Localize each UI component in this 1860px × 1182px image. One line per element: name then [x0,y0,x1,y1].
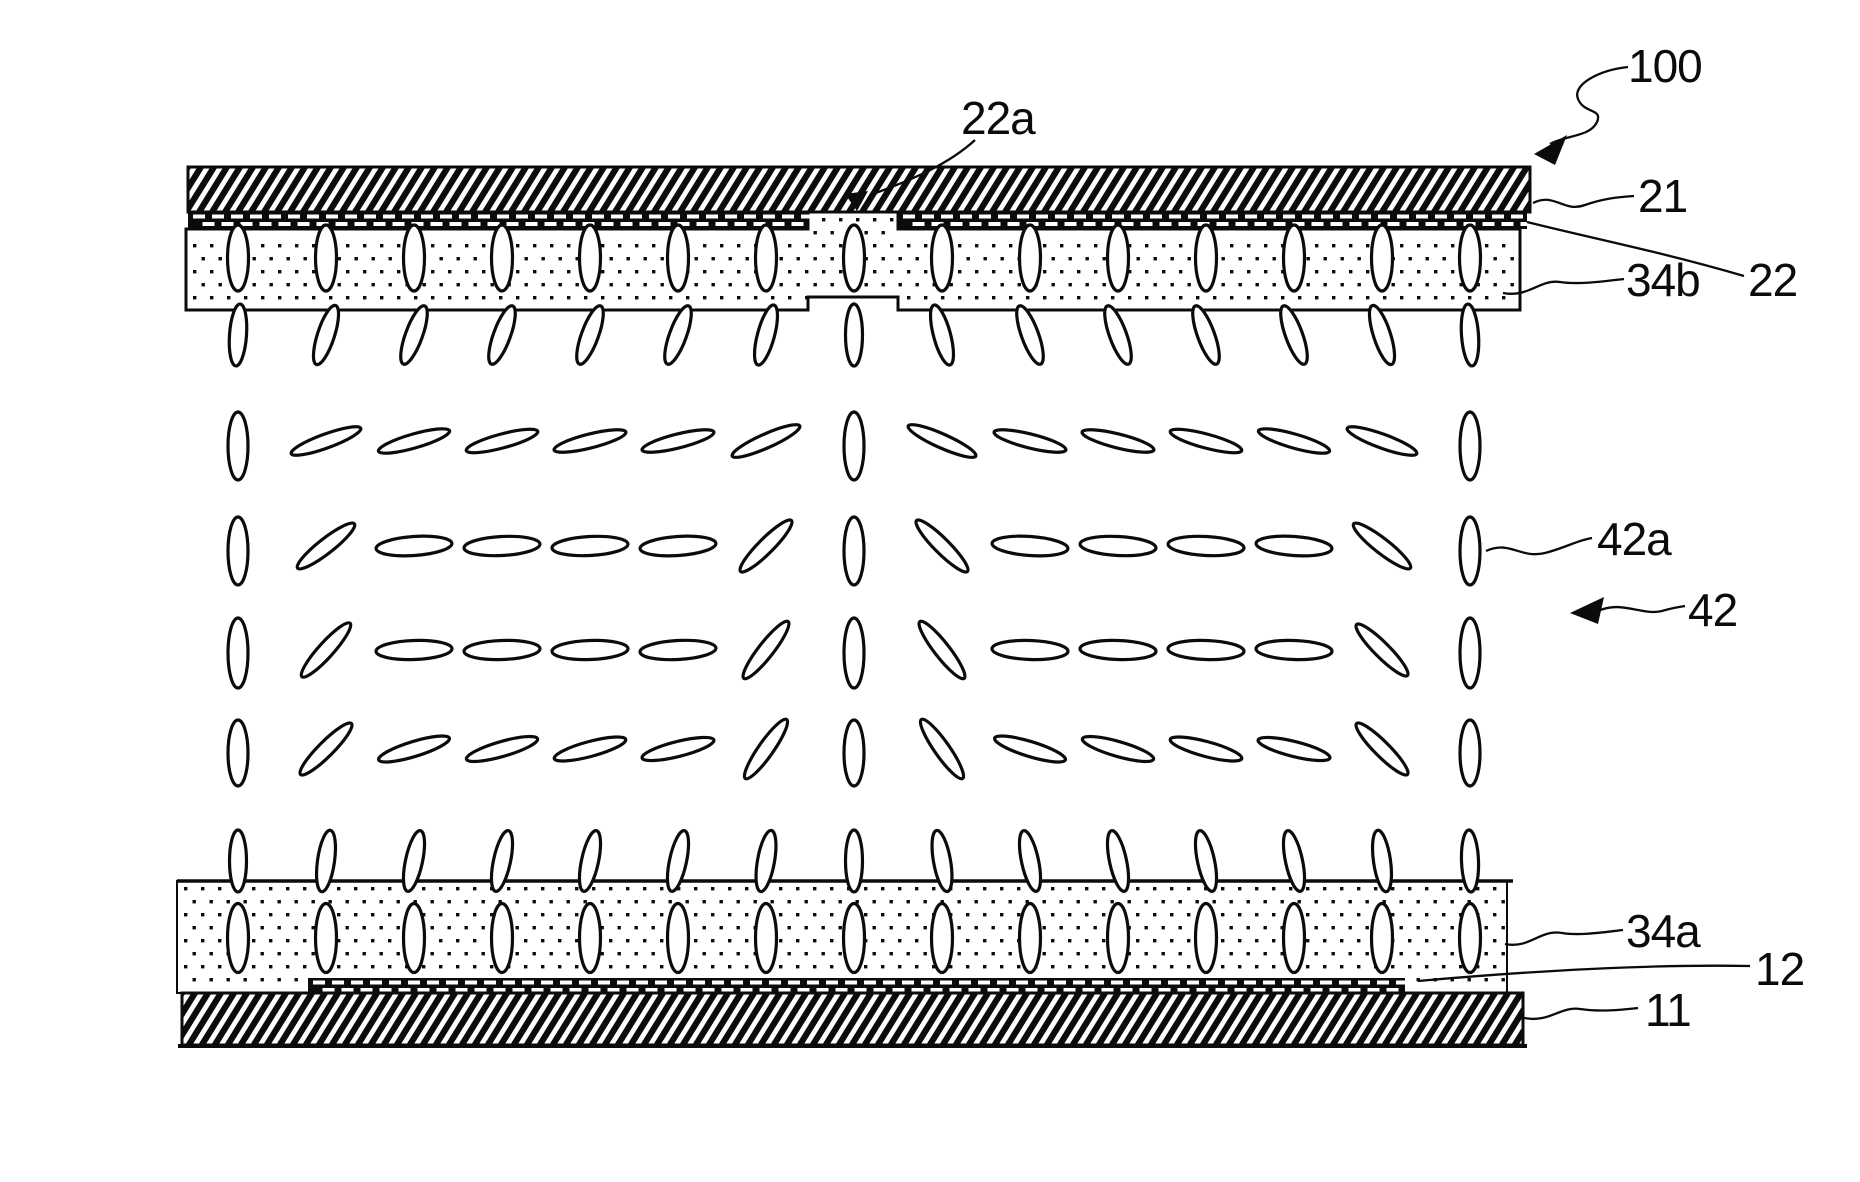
lc-molecule [295,718,357,780]
lc-molecule [296,618,355,682]
lc-molecule [756,904,777,973]
lc-molecule [308,303,343,367]
lc-molecule [1020,904,1041,973]
lc-row-bulk-row-b [228,515,1480,585]
lc-molecule [552,639,629,661]
lc-molecule [580,225,601,291]
lc-molecule [1255,534,1332,558]
lc-molecule [926,303,958,367]
lc-molecule [739,715,793,783]
lc-row-embedded-bottom [228,904,1481,973]
lc-layer-42 [227,225,1480,973]
lc-molecule [844,225,865,291]
lc-molecule [659,303,696,367]
lc-molecule [729,420,802,463]
lc-molecule [1168,732,1243,766]
lc-molecule [230,830,247,892]
lc-molecule [992,425,1067,456]
lc-molecule [464,425,539,458]
lc-molecule [552,425,627,456]
label-42: 42 [1688,584,1737,636]
lc-molecule [1351,718,1413,780]
lc-molecule [844,720,864,786]
lc-molecule [1372,904,1393,973]
lc-molecule [375,534,452,558]
lc-molecule [911,515,973,577]
lc-molecule [1460,225,1481,291]
lc-molecule [914,617,970,683]
lc-molecule [905,420,978,463]
lc-molecule [289,422,363,460]
lc-molecule [1351,619,1413,681]
lc-molecule [1011,303,1048,367]
lc-molecule [293,518,359,574]
lc-molecule [228,412,248,480]
arrowhead-42 [1570,597,1604,624]
label-42a: 42a [1597,513,1672,565]
lc-molecule [1256,639,1333,661]
lc-molecule [395,303,432,367]
lc-molecule [404,904,425,973]
lc-molecule [228,225,249,291]
lc-molecule [1364,303,1399,367]
lc-molecule [1080,639,1157,661]
lc-molecule [483,303,520,367]
lc-molecule [668,904,689,973]
lc-molecule [639,534,716,558]
arrowhead-100 [1534,135,1567,165]
lc-molecule [316,225,337,291]
lc-molecule [1345,422,1419,460]
label-34b: 34b [1626,254,1700,306]
lc-row-embedded-top [228,225,1481,291]
lc-molecule [1459,303,1480,366]
lc-molecule [1460,904,1481,973]
lc-molecule [1275,303,1312,367]
lc-molecule [1168,425,1243,458]
leader-42 [1598,606,1685,612]
leader-42a [1486,538,1592,554]
lc-molecule [1168,535,1245,558]
lc-molecule [1460,517,1480,585]
label-12: 12 [1755,943,1804,995]
lc-molecule [991,534,1068,558]
lc-molecule [1080,425,1155,456]
figure-geometry [150,67,1750,1046]
lc-molecule [735,515,797,577]
lcd-cross-section-figure: 100 22a 21 34b 22 42a 42 34a 12 11 [0,0,1860,1182]
lc-molecule [1460,720,1480,786]
lc-molecule [640,639,717,662]
lc-molecule [228,517,248,585]
lc-molecule [1080,535,1157,558]
lc-molecule [844,517,864,585]
lc-molecule [1349,518,1415,574]
lc-molecule [377,424,452,458]
glass-substrate-11 [150,993,1547,1046]
lc-row-hanging [227,303,1480,367]
label-22: 22 [1748,254,1797,306]
label-22a: 22a [961,92,1036,144]
lc-molecule [552,535,629,558]
lc-molecule [738,617,794,683]
label-100: 100 [1628,40,1702,92]
lc-molecule [464,732,539,767]
leader-100 [1550,67,1628,144]
label-11: 11 [1645,984,1691,1036]
lc-molecule [492,225,513,291]
lc-molecule [932,225,953,291]
lc-molecule [750,303,782,367]
label-21: 21 [1638,170,1687,222]
lc-molecule [1460,412,1480,480]
lc-molecule [580,904,601,973]
lc-molecule [844,618,864,688]
lc-molecule [915,715,969,783]
lc-molecule [1284,904,1305,973]
lc-row-bulk-row-d [228,715,1480,786]
lc-molecule [1187,303,1224,367]
lc-molecule [1460,830,1479,893]
lc-molecule [464,535,541,558]
lc-molecule [844,904,865,973]
lc-molecule [640,425,715,456]
lc-molecule [1168,639,1245,661]
lc-row-standing [230,829,1480,893]
lc-molecule [1099,303,1136,367]
lc-molecule [1460,618,1480,688]
lc-molecule [1108,225,1129,291]
lc-molecule [1284,225,1305,291]
lc-molecule [228,904,249,973]
lc-molecule [992,639,1069,661]
patent-figure-page: 100 22a 21 34b 22 42a 42 34a 12 11 [0,0,1860,1182]
lc-molecule [1020,225,1041,291]
lc-molecule [1256,733,1331,765]
lc-molecule [464,639,541,661]
lc-molecule [228,720,248,786]
lc-molecule [1108,904,1129,973]
leader-21 [1533,196,1634,207]
leader-11 [1524,1008,1638,1019]
lc-molecule [992,731,1067,767]
lc-molecule [846,830,863,892]
lc-molecule [668,225,689,291]
lc-molecule [1196,904,1217,973]
lc-molecule [1372,225,1393,291]
lc-molecule [1257,424,1332,458]
lc-row-bulk-row-c [228,617,1480,688]
lc-molecule [492,904,513,973]
lc-molecule [640,733,715,765]
lc-molecule [376,639,453,661]
lc-molecule [227,303,248,366]
lc-molecule [1196,225,1217,291]
lc-molecule [932,904,953,973]
lc-molecule [404,225,425,291]
lc-molecule [1080,732,1155,767]
lc-molecule [756,225,777,291]
lc-row-bulk-row-a [228,412,1480,480]
leader-34a [1505,930,1623,945]
lc-molecule [376,731,451,767]
label-34a: 34a [1626,905,1701,957]
lc-molecule [846,304,863,366]
lc-molecule [552,732,627,766]
lc-molecule [316,904,337,973]
lc-molecule [571,303,608,367]
lc-molecule [228,618,248,688]
lc-molecule [844,412,864,480]
